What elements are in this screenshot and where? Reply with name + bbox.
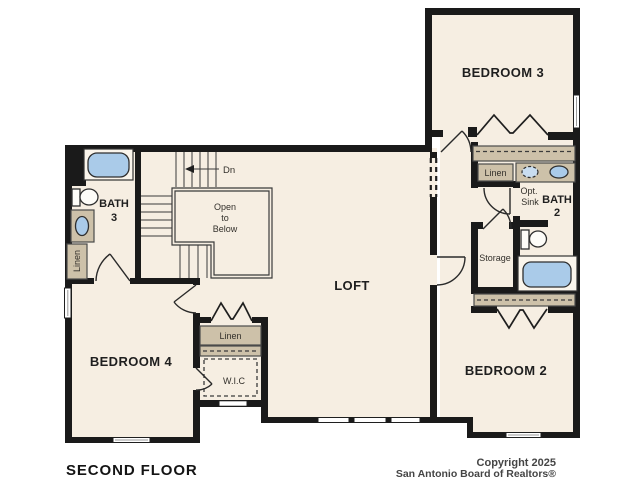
- open-to-below-line2: to: [221, 213, 229, 223]
- bath3-label-line2: 3: [111, 212, 117, 224]
- window-loft-2: [354, 418, 386, 423]
- hall-linen-label: Linen: [219, 331, 241, 341]
- wic-label: W.I.C: [223, 376, 245, 386]
- niche-wic-bottom: [219, 401, 247, 406]
- bath2-optional-sink: [522, 167, 538, 178]
- bath2-toilet-tank: [521, 230, 529, 249]
- copyright-line2: San Antonio Board of Realtors®: [396, 468, 556, 480]
- stairs-down-label: Dn: [223, 165, 235, 176]
- bedroom2-label: BEDROOM 2: [465, 363, 547, 378]
- bedroom3-label: BEDROOM 3: [462, 65, 544, 80]
- bath3-linen-label: Linen: [72, 250, 82, 272]
- bath3-tub: [88, 153, 129, 177]
- window-loft-3: [391, 418, 420, 423]
- bath2-sink: [550, 166, 568, 178]
- bath3-sink: [76, 217, 89, 236]
- window-loft-1: [318, 418, 349, 423]
- bath2-toilet-bowl: [530, 231, 547, 247]
- storage-label: Storage: [479, 253, 511, 263]
- opt-sink-label-line2: Sink: [521, 197, 539, 207]
- bath2-label-line1: BATH: [542, 194, 572, 206]
- bedroom4-label: BEDROOM 4: [90, 354, 173, 369]
- bedroom2-closet-shelf: [474, 294, 575, 306]
- wic-rod-band: [200, 346, 261, 356]
- linen-upstairs-label: Linen: [484, 168, 506, 178]
- bath3-label-line1: BATH: [99, 198, 129, 210]
- bath3-toilet-tank: [72, 189, 80, 206]
- bedroom3-closet-shelf: [473, 146, 575, 161]
- loft-label: LOFT: [334, 278, 370, 293]
- floor-plan-image: BEDROOM 3 LOFT BEDROOM 4 BEDROOM 2 BATH …: [0, 0, 640, 480]
- bath3-toilet-bowl: [80, 189, 98, 205]
- open-to-below-line1: Open: [214, 202, 236, 212]
- open-to-below-line3: Below: [213, 224, 238, 234]
- opt-sink-label-line1: Opt.: [520, 186, 537, 196]
- floor-plan-svg: BEDROOM 3 LOFT BEDROOM 4 BEDROOM 2 BATH …: [0, 0, 640, 480]
- bath2-label-line2: 2: [554, 207, 560, 219]
- bath2-tub: [523, 262, 571, 287]
- floor-title: SECOND FLOOR: [66, 462, 198, 479]
